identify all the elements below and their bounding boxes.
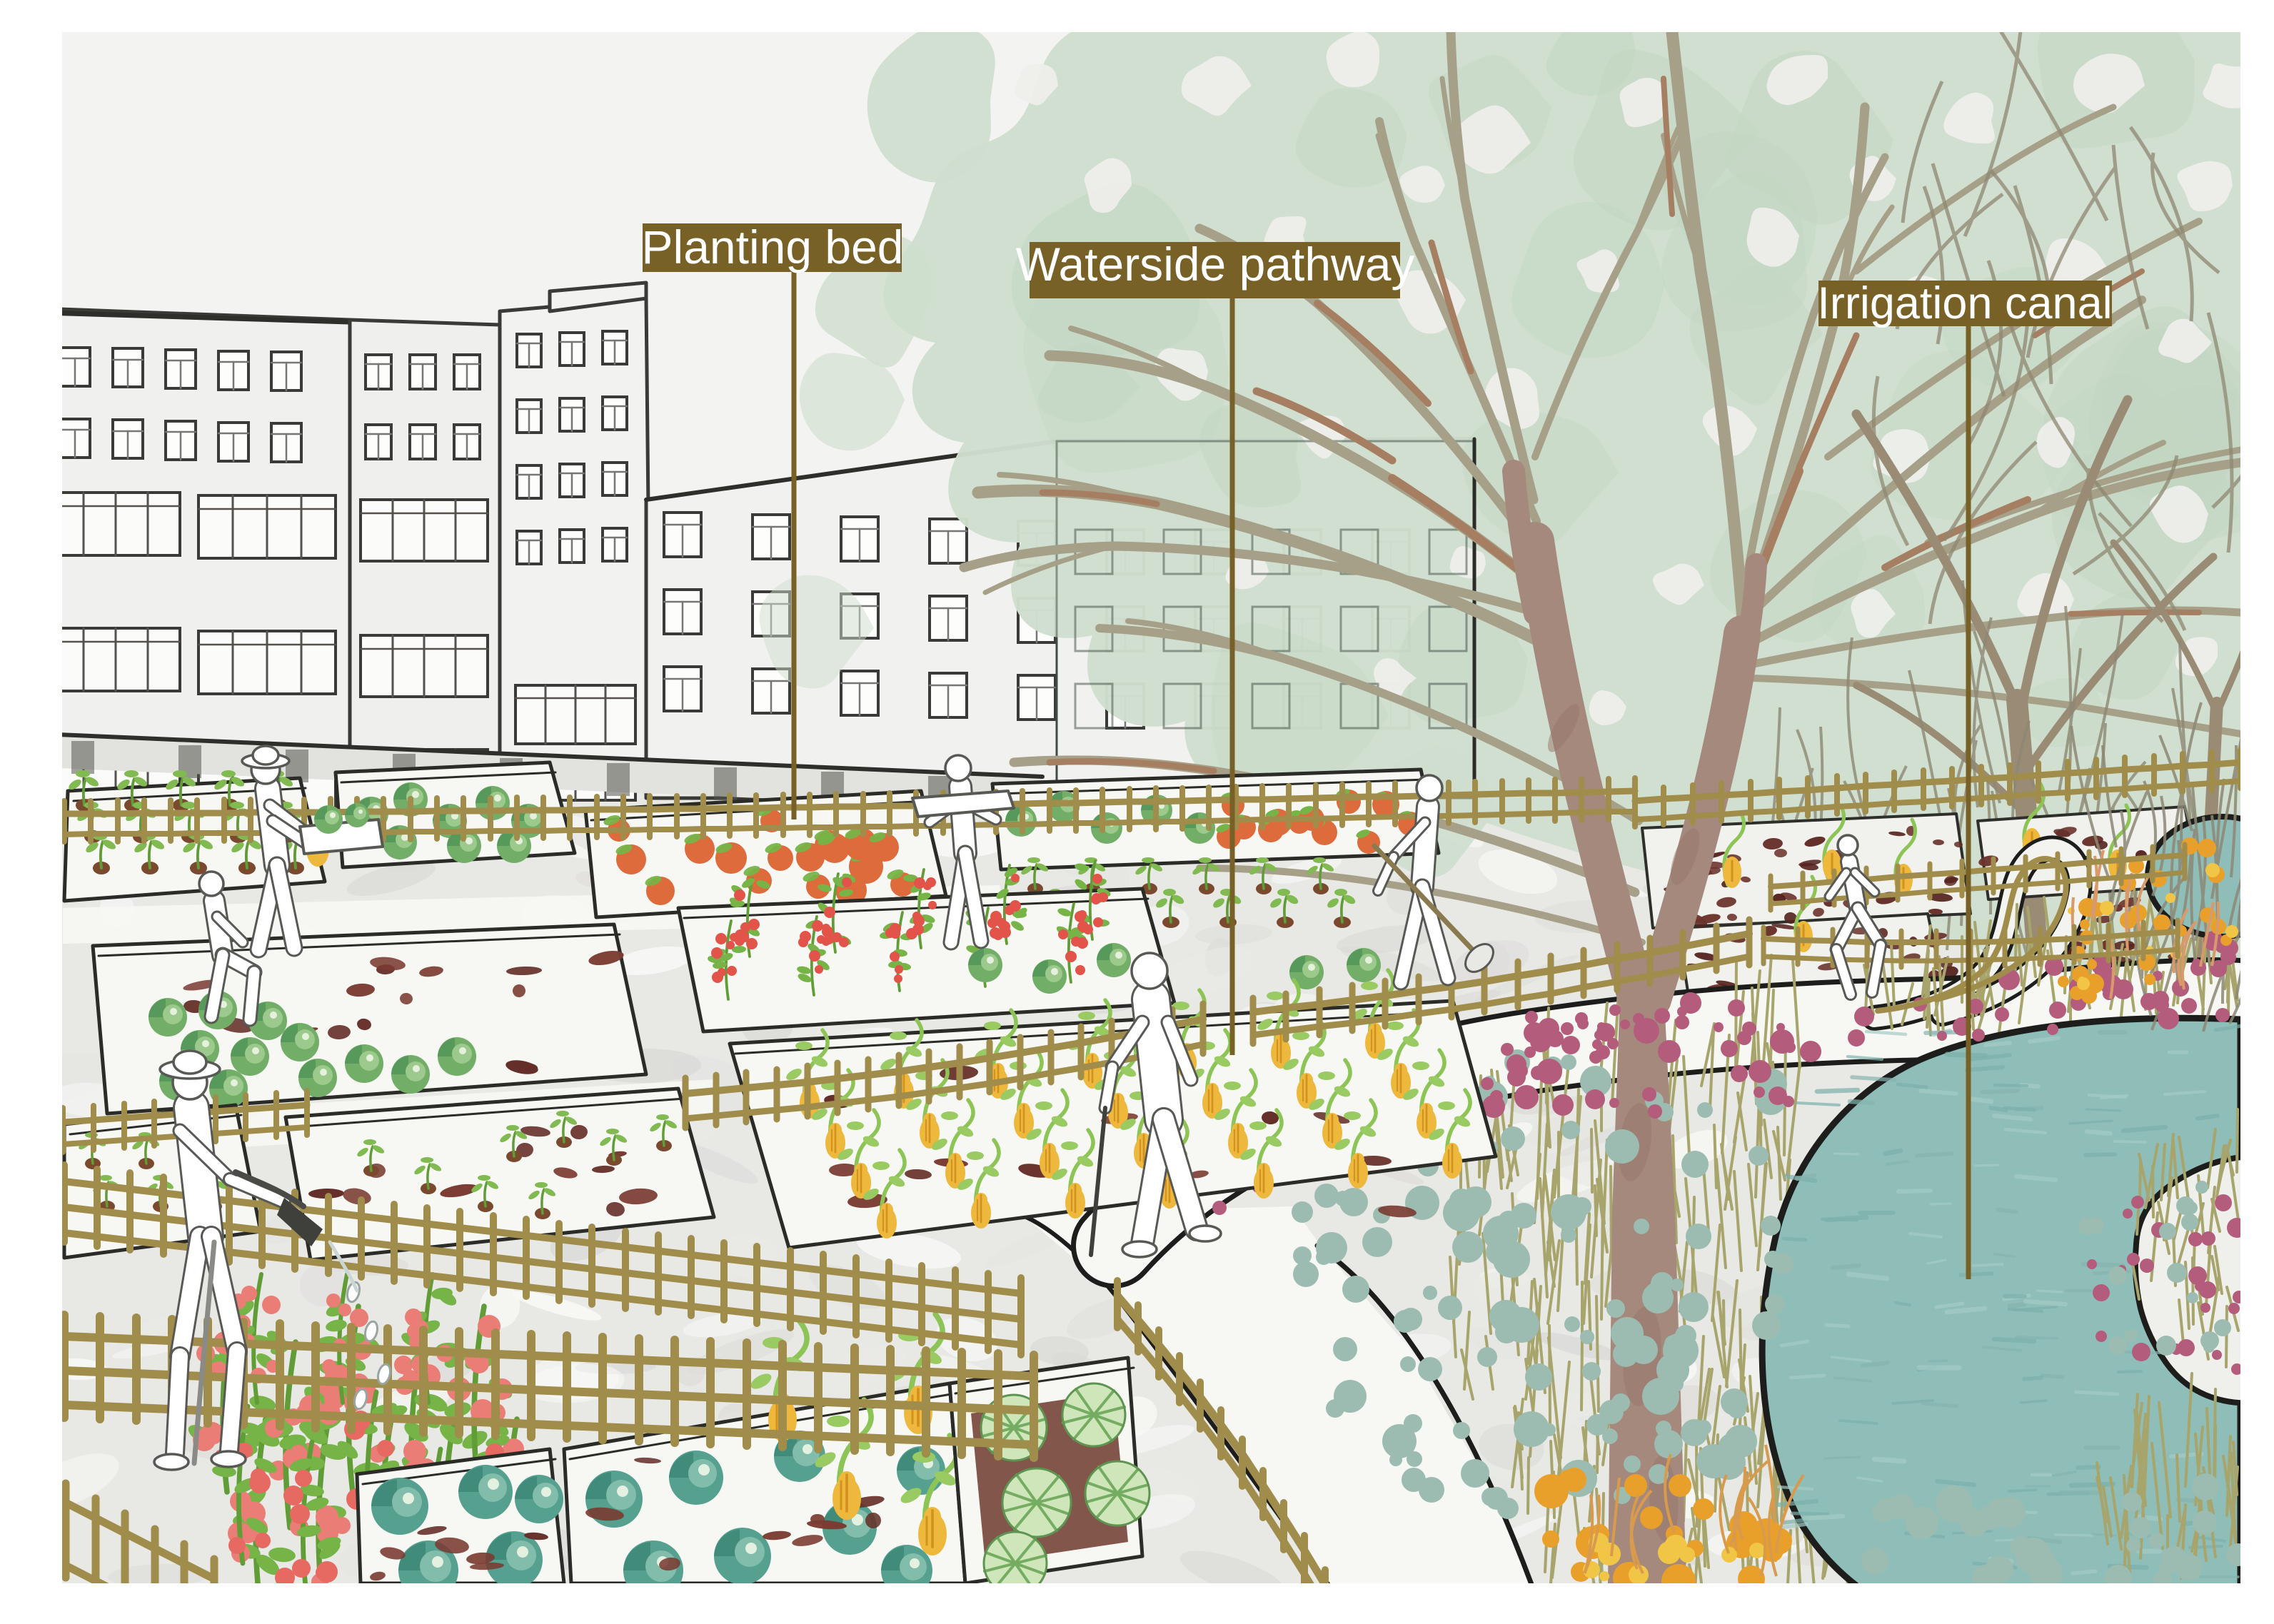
svg-text:Planting bed: Planting bed xyxy=(642,221,904,273)
svg-text:Irrigation canal: Irrigation canal xyxy=(1817,278,2112,328)
svg-text:Waterside pathway: Waterside pathway xyxy=(1016,238,1415,291)
